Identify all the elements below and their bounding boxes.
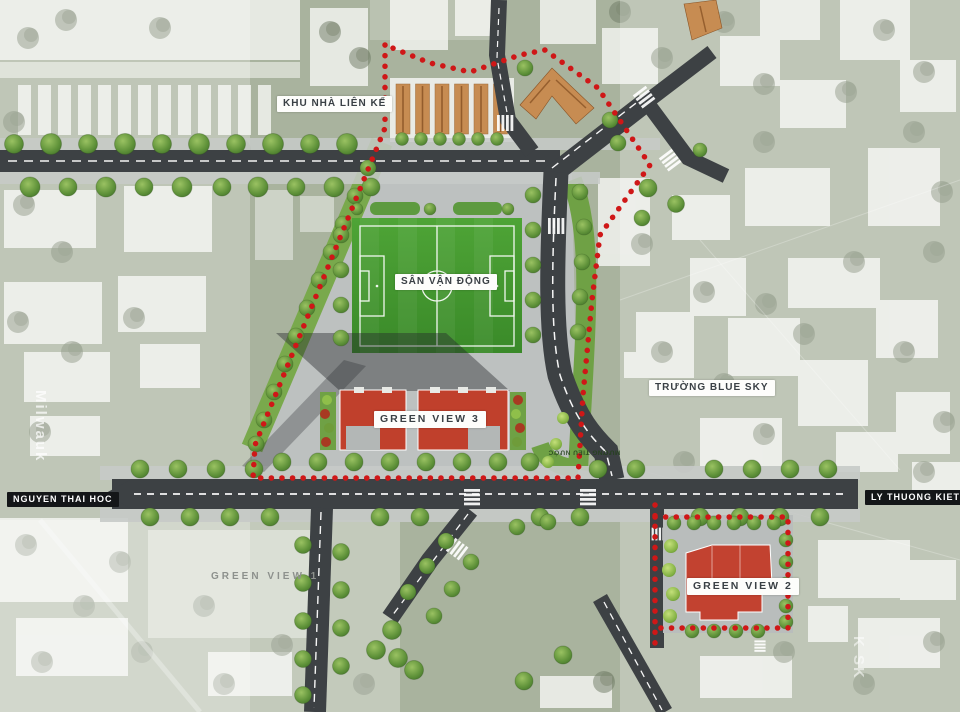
label-green-view-3: GREEN VIEW 3	[374, 411, 486, 428]
green-view-2-block	[663, 515, 793, 633]
site-plan: KHU NHÀ LIÊN KẾ SÂN VẬN ĐỘNG GREEN VIEW …	[0, 0, 960, 712]
watermark-k-sk: K SK	[850, 636, 867, 680]
label-muong-tieu-nuoc: MƯƠNG TIÊU NƯỚC	[548, 448, 620, 455]
label-truong-blue-sky: TRƯỜNG BLUE SKY	[649, 380, 775, 396]
label-ly-thuong-kiet: LY THUONG KIET	[865, 490, 960, 505]
label-nguyen-thai-hoc: NGUYEN THAI HOC	[7, 492, 119, 507]
label-green-view-1: GREEN VIEW 1	[205, 569, 325, 585]
label-san-van-dong: SÂN VẬN ĐỘNG	[395, 274, 497, 290]
site-plan-drawing	[0, 0, 960, 712]
label-green-view-2: GREEN VIEW 2	[687, 578, 799, 595]
watermark-milwauk: Milwauk	[32, 390, 49, 462]
label-khu-nha-lien-ke: KHU NHÀ LIÊN KẾ	[277, 96, 392, 112]
